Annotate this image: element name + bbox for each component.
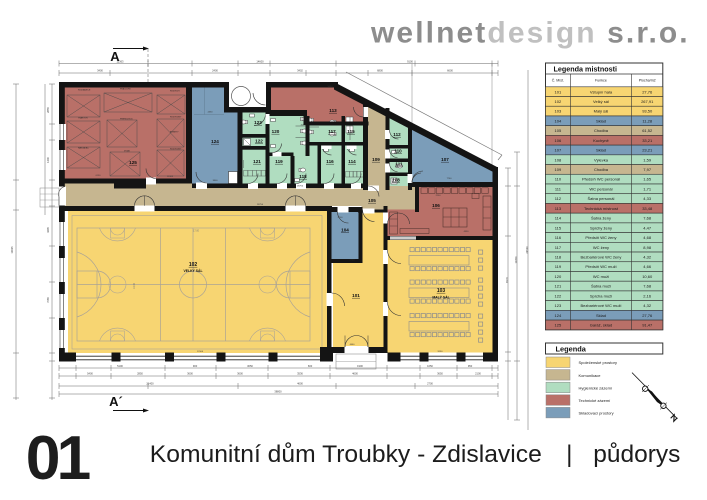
svg-text:4,33: 4,33 — [643, 196, 652, 201]
svg-text:600: 600 — [308, 364, 313, 368]
svg-text:4330: 4330 — [464, 231, 470, 233]
svg-text:MALÝ SÁL: MALÝ SÁL — [432, 295, 449, 300]
svg-text:123: 123 — [555, 303, 562, 308]
svg-text:118: 118 — [299, 174, 307, 179]
svg-text:3050: 3050 — [247, 364, 253, 368]
svg-text:102: 102 — [555, 99, 562, 104]
svg-text:61,52: 61,52 — [642, 128, 653, 133]
svg-text:17,00: 17,00 — [193, 230, 200, 233]
svg-text:Sklad: Sklad — [596, 118, 606, 123]
svg-text:Garáž, sklad: Garáž, sklad — [590, 323, 612, 328]
svg-text:125: 125 — [555, 323, 562, 328]
svg-text:2250: 2250 — [436, 195, 442, 197]
svg-text:2,16: 2,16 — [643, 293, 652, 298]
svg-text:2100: 2100 — [475, 372, 481, 376]
svg-text:BRIKETY: BRIKETY — [170, 132, 179, 134]
svg-text:27,76: 27,76 — [642, 89, 653, 94]
svg-text:17000: 17000 — [197, 351, 204, 353]
svg-text:103: 103 — [555, 109, 562, 114]
svg-text:124: 124 — [555, 313, 562, 318]
svg-text:2400: 2400 — [212, 69, 218, 73]
svg-text:5100: 5100 — [117, 364, 123, 368]
svg-text:9150: 9150 — [438, 351, 444, 353]
svg-text:wellnetdesign s.r.o.: wellnetdesign s.r.o. — [370, 16, 690, 49]
svg-text:4,47: 4,47 — [643, 225, 652, 230]
svg-text:4,32: 4,32 — [643, 303, 652, 308]
svg-text:2700: 2700 — [427, 382, 433, 386]
svg-text:Č. Míst.: Č. Míst. — [552, 78, 564, 83]
svg-text:109: 109 — [555, 167, 562, 172]
svg-text:33,48: 33,48 — [642, 206, 653, 211]
svg-text:5400: 5400 — [87, 372, 93, 376]
svg-text:7065: 7065 — [46, 297, 50, 303]
svg-text:11350: 11350 — [514, 256, 518, 264]
svg-text:111: 111 — [555, 186, 562, 191]
svg-text:105: 105 — [555, 128, 562, 133]
svg-text:1,59: 1,59 — [643, 157, 652, 162]
svg-text:3800: 3800 — [213, 180, 219, 182]
svg-text:A: A — [110, 49, 120, 64]
svg-text:PRACOVNI: PRACOVNI — [120, 88, 131, 91]
svg-text:2080: 2080 — [301, 125, 307, 127]
svg-text:10,60: 10,60 — [642, 274, 653, 279]
svg-text:Sklad: Sklad — [596, 313, 606, 318]
svg-text:106: 106 — [432, 203, 440, 208]
svg-text:Bezbariérové WC muži: Bezbariérové WC muži — [580, 303, 621, 308]
svg-text:114: 114 — [555, 216, 562, 221]
svg-text:7,97: 7,97 — [643, 167, 652, 172]
svg-text:124: 124 — [211, 139, 219, 144]
svg-text:ROZVODNY: ROZVODNY — [170, 117, 182, 119]
svg-text:NAKLADAC: NAKLADAC — [78, 147, 89, 150]
svg-text:111: 111 — [395, 162, 403, 167]
svg-text:109: 109 — [372, 157, 380, 162]
svg-text:WC personál: WC personál — [589, 186, 612, 191]
svg-text:2700: 2700 — [338, 217, 344, 219]
svg-text:2855: 2855 — [46, 107, 50, 113]
svg-text:Komunikace: Komunikace — [579, 373, 602, 378]
svg-text:4495: 4495 — [46, 227, 50, 233]
svg-text:Společenské prostory: Společenské prostory — [579, 360, 617, 365]
svg-text:Legenda: Legenda — [556, 344, 587, 353]
svg-text:Legenda mistnosti: Legenda mistnosti — [554, 65, 618, 74]
svg-text:116: 116 — [326, 159, 334, 164]
svg-text:ROZVODY: ROZVODY — [170, 91, 181, 93]
svg-text:27,76: 27,76 — [642, 313, 653, 318]
svg-text:11363: 11363 — [167, 176, 174, 178]
svg-text:115: 115 — [347, 129, 355, 134]
svg-text:117: 117 — [555, 245, 562, 250]
svg-text:110: 110 — [555, 177, 562, 182]
svg-text:8,98: 8,98 — [643, 245, 652, 250]
svg-text:6600: 6600 — [447, 69, 453, 73]
svg-text:8170: 8170 — [505, 277, 509, 283]
svg-text:112: 112 — [555, 196, 562, 201]
svg-text:122: 122 — [555, 293, 562, 298]
svg-text:3600: 3600 — [237, 372, 243, 376]
svg-text:3536: 3536 — [297, 372, 303, 376]
svg-text:9100: 9100 — [407, 59, 413, 63]
svg-text:Malý sál: Malý sál — [594, 109, 609, 114]
svg-text:1,71: 1,71 — [643, 186, 652, 191]
svg-text:VELKÝ SÁL: VELKÝ SÁL — [183, 268, 202, 273]
svg-text:101: 101 — [352, 293, 360, 298]
svg-text:24530: 24530 — [525, 246, 529, 254]
svg-text:Hygienické zázemí: Hygienické zázemí — [579, 385, 613, 390]
svg-text:121: 121 — [253, 159, 261, 164]
svg-text:123: 123 — [254, 120, 262, 125]
svg-text:Sklad: Sklad — [596, 148, 606, 153]
svg-text:104: 104 — [555, 118, 562, 123]
svg-text:4600: 4600 — [352, 372, 358, 376]
svg-text:14600: 14600 — [256, 59, 264, 63]
svg-text:4460: 4460 — [350, 344, 356, 346]
svg-text:107: 107 — [555, 148, 562, 153]
svg-text:Plocha/m2: Plocha/m2 — [639, 79, 656, 83]
svg-text:WC ženy: WC ženy — [593, 245, 609, 250]
svg-text:2850: 2850 — [137, 372, 143, 376]
svg-text:Chodba: Chodba — [594, 128, 609, 133]
svg-text:119: 119 — [555, 264, 562, 269]
svg-text:106: 106 — [555, 138, 562, 143]
svg-text:1900: 1900 — [357, 364, 363, 368]
svg-text:28750: 28750 — [297, 186, 304, 188]
svg-text:122: 122 — [255, 139, 263, 144]
svg-text:3600: 3600 — [187, 372, 193, 376]
svg-text:119: 119 — [275, 159, 283, 164]
svg-text:11,28: 11,28 — [642, 118, 652, 123]
svg-text:Sprchy ženy: Sprchy ženy — [590, 225, 612, 230]
svg-text:120: 120 — [555, 274, 562, 279]
svg-text:3650: 3650 — [437, 372, 443, 376]
svg-text:Kuchyně: Kuchyně — [593, 138, 609, 143]
svg-text:91,47: 91,47 — [642, 323, 653, 328]
svg-text:4,66: 4,66 — [643, 264, 652, 269]
svg-text:VOZIK: VOZIK — [124, 151, 131, 153]
svg-text:2430: 2430 — [208, 112, 214, 114]
svg-text:900: 900 — [193, 364, 198, 368]
svg-text:TRAKTOR: TRAKTOR — [78, 117, 88, 120]
svg-text:116: 116 — [555, 235, 562, 240]
svg-text:33,21: 33,21 — [642, 138, 653, 143]
svg-text:Funkce: Funkce — [595, 79, 607, 83]
svg-text:120: 120 — [272, 129, 280, 134]
svg-text:7760: 7760 — [447, 178, 453, 180]
svg-text:28750: 28750 — [257, 204, 264, 206]
svg-text:117: 117 — [328, 129, 336, 134]
svg-text:112: 112 — [393, 132, 401, 137]
svg-text:Šatna personál: Šatna personál — [587, 196, 614, 201]
svg-text:Šatna ženy: Šatna ženy — [591, 216, 611, 221]
svg-text:01: 01 — [26, 423, 91, 493]
svg-text:Předsíň WC ženy: Předsíň WC ženy — [585, 235, 616, 240]
svg-text:Skladovací prostory: Skladovací prostory — [579, 411, 614, 416]
svg-text:Šatna muži: Šatna muži — [591, 284, 611, 289]
svg-text:108: 108 — [555, 157, 562, 162]
svg-text:Sprcha muži: Sprcha muži — [590, 293, 612, 298]
svg-text:Technická místnost: Technická místnost — [584, 206, 619, 211]
svg-text:110: 110 — [394, 149, 402, 154]
svg-text:3402: 3402 — [297, 69, 303, 73]
svg-text:23,21: 23,21 — [642, 148, 653, 153]
svg-text:107: 107 — [441, 157, 449, 162]
svg-text:7,68: 7,68 — [643, 284, 652, 289]
svg-text:114: 114 — [348, 159, 356, 164]
svg-text:Komunitní dům Troubky - Zdisla: Komunitní dům Troubky - Zdislavice — [150, 441, 542, 468]
svg-text:ROZVADECE: ROZVADECE — [78, 89, 91, 92]
svg-text:38800: 38800 — [274, 390, 282, 394]
svg-text:113: 113 — [329, 108, 337, 113]
svg-text:125: 125 — [129, 160, 137, 165]
svg-text:Bezbariérové WC ženy: Bezbariérové WC ženy — [580, 255, 621, 260]
svg-text:5090: 5090 — [328, 86, 334, 88]
svg-text:Předsíň WC muži: Předsíň WC muži — [585, 264, 616, 269]
svg-text:104: 104 — [341, 228, 349, 233]
svg-text:PREROZVOD: PREROZVOD — [120, 119, 133, 121]
svg-text:6800: 6800 — [377, 69, 383, 73]
svg-text:10,00: 10,00 — [133, 282, 136, 289]
svg-text:4,68: 4,68 — [643, 235, 652, 240]
svg-text:Chodba: Chodba — [594, 167, 609, 172]
svg-text:Vstupní hala: Vstupní hala — [590, 89, 613, 94]
svg-text:Technické zázemí: Technické zázemí — [579, 398, 612, 403]
svg-text:118: 118 — [555, 255, 562, 260]
svg-text:Výlevka: Výlevka — [594, 157, 609, 162]
svg-text:7,68: 7,68 — [643, 216, 652, 221]
svg-text:21400: 21400 — [146, 382, 154, 386]
svg-text:105: 105 — [368, 198, 376, 203]
svg-text:4,32: 4,32 — [643, 255, 652, 260]
svg-text:1650: 1650 — [427, 364, 433, 368]
svg-text:půdorys: půdorys — [593, 441, 680, 468]
svg-text:13935: 13935 — [10, 246, 14, 254]
svg-text:|: | — [566, 441, 572, 468]
svg-text:6130: 6130 — [96, 175, 102, 177]
svg-text:950: 950 — [468, 364, 473, 368]
svg-text:Velký sál: Velký sál — [593, 99, 609, 104]
svg-text:267,91: 267,91 — [641, 99, 654, 104]
svg-text:108: 108 — [392, 178, 400, 183]
svg-text:2700: 2700 — [350, 260, 356, 262]
svg-text:1400: 1400 — [46, 157, 50, 163]
svg-text:WC muži: WC muži — [593, 274, 609, 279]
svg-text:1,65: 1,65 — [643, 177, 652, 182]
svg-text:115: 115 — [555, 225, 562, 230]
svg-text:3400: 3400 — [97, 69, 103, 73]
svg-text:Předsíň WC personál: Předsíň WC personál — [582, 177, 620, 182]
svg-text:ROZVODNY: ROZVODNY — [170, 149, 182, 151]
svg-text:101: 101 — [555, 89, 562, 94]
svg-text:121: 121 — [555, 284, 562, 289]
svg-text:93,50: 93,50 — [642, 109, 653, 114]
svg-text:113: 113 — [555, 206, 562, 211]
svg-text:A´: A´ — [109, 394, 123, 409]
svg-text:4600: 4600 — [297, 382, 303, 386]
